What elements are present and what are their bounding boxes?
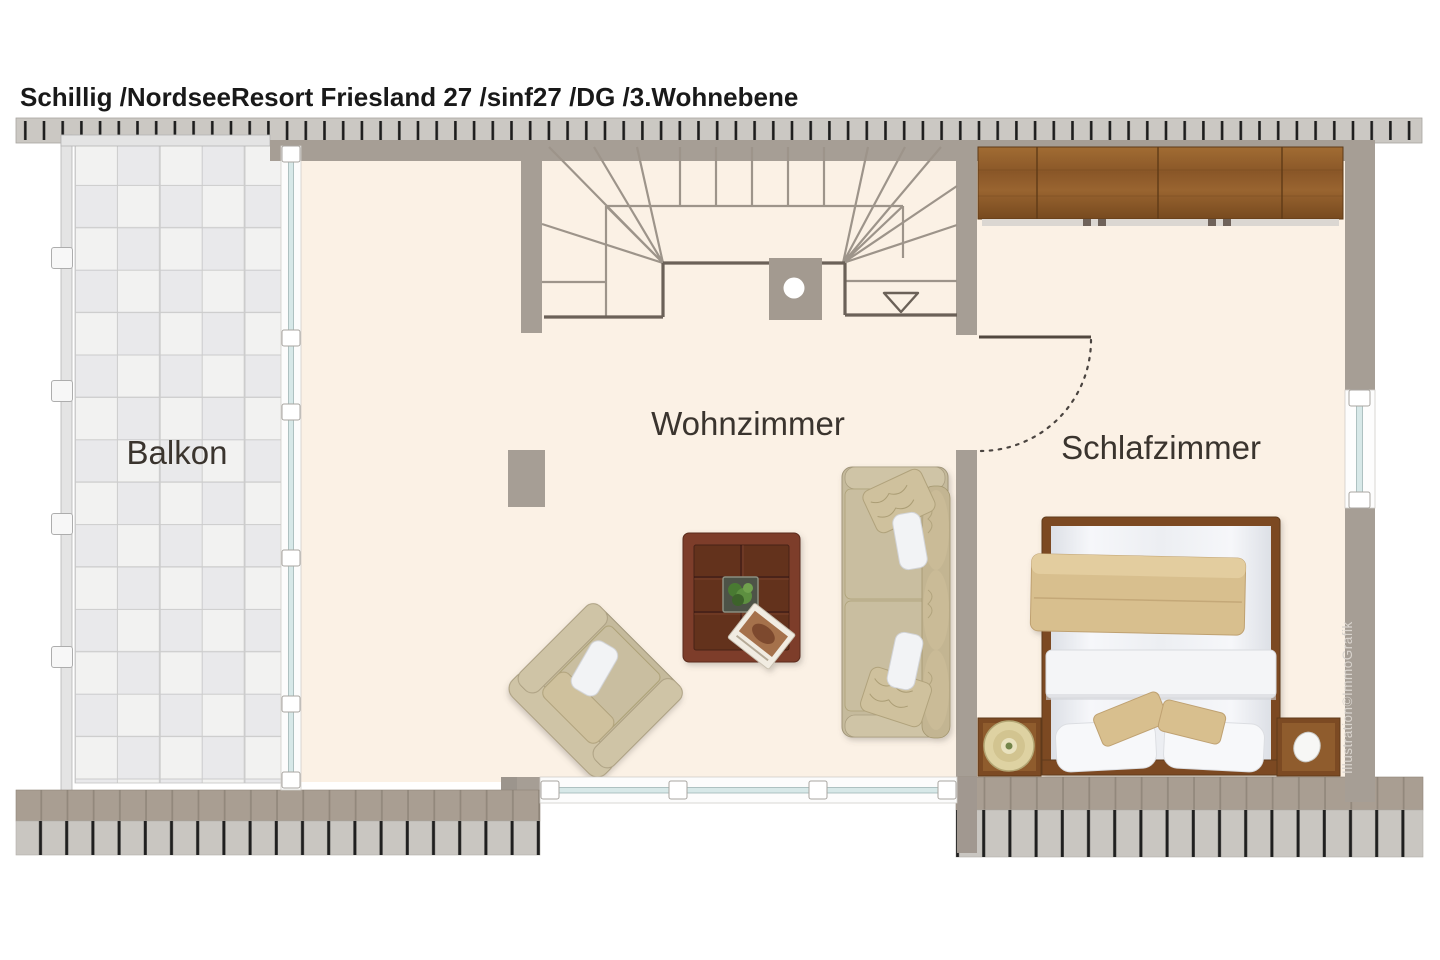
bed-blanket [1030,554,1246,635]
nightstand-left [978,718,1041,776]
wall-right-upper [1345,140,1375,390]
living-room-label: Wohnzimmer [651,405,845,442]
wall-stair-left [521,146,542,333]
illustration-credit: Illustration©ImmoGrafik [1340,621,1355,774]
sofa [842,467,950,738]
stair-post-hole [784,278,805,299]
wall-divider-bottom [956,450,977,777]
chimney-pillar [508,450,545,507]
balcony-railing-left [61,135,72,791]
bedroom-label: Schlafzimmer [1061,429,1261,466]
window-balcony-divider [281,146,301,790]
floor-plan-page: Schillig /NordseeResort Friesland 27 /si… [0,0,1440,960]
wardrobe-shadow [982,219,1339,226]
balcony-railing-top [61,135,270,146]
window-bedroom-right [1345,390,1375,508]
deck-bottom-left [16,790,540,855]
coffee-table [683,533,800,670]
window-living-bottom [540,777,957,803]
nightstand-right [1277,718,1340,776]
balcony-label: Balkon [127,434,228,471]
wall-divider-deck-extension [957,777,977,853]
bed [1030,517,1280,775]
plan-title: Schillig /NordseeResort Friesland 27 /si… [20,82,798,112]
bed-sheet-band [1046,650,1276,698]
wall-divider-top [956,146,977,335]
wardrobe [978,147,1343,226]
floor-plan-svg: Schillig /NordseeResort Friesland 27 /si… [0,0,1440,960]
